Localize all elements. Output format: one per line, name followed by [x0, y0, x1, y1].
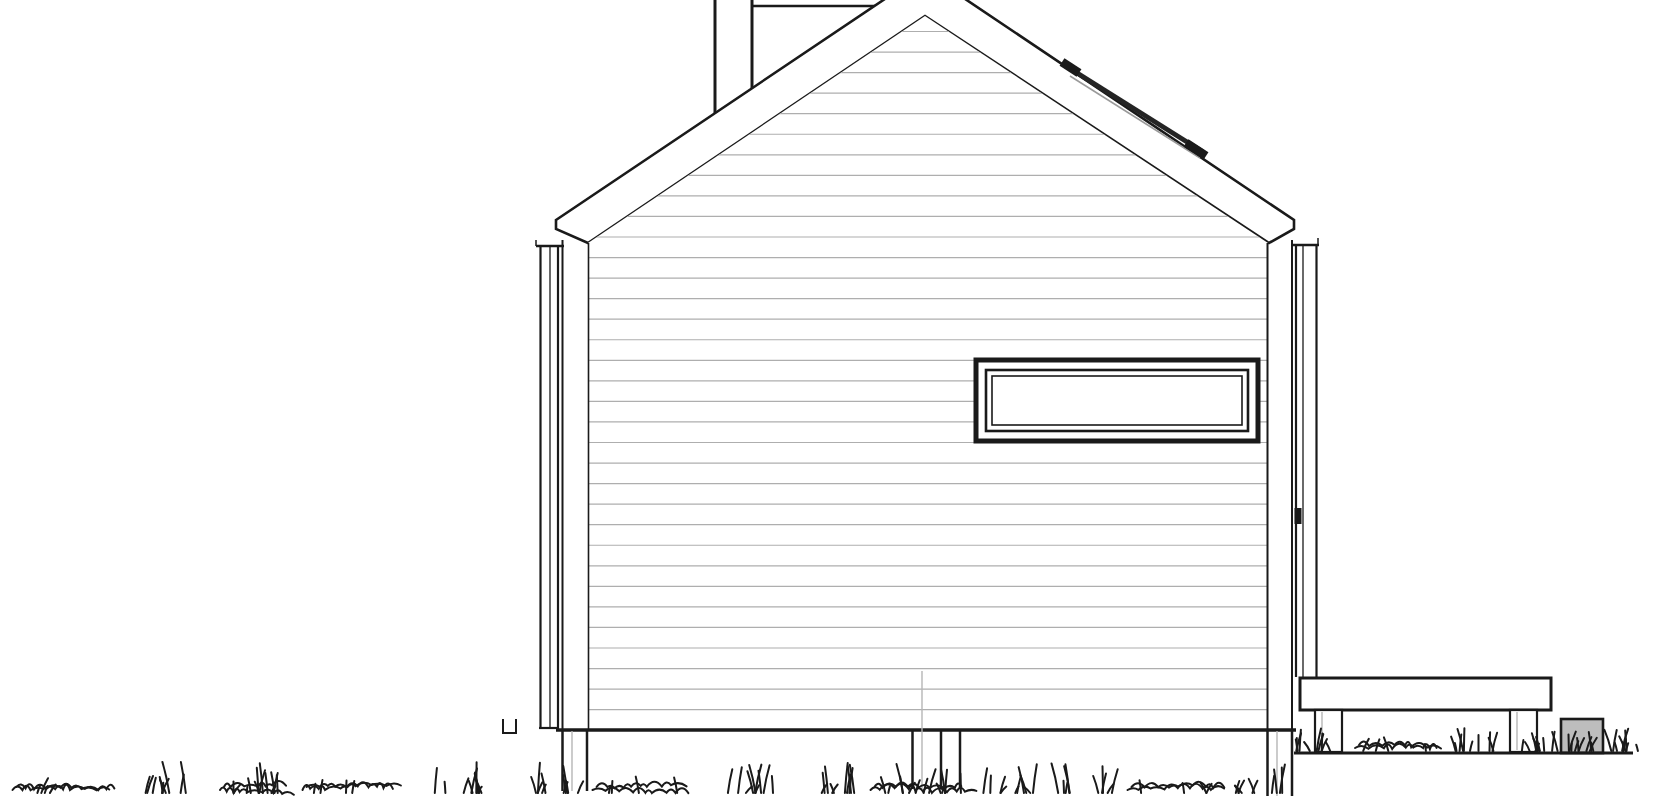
grass-blade: [1140, 780, 1142, 793]
grass-blade: [445, 782, 446, 793]
grass-tuft-cluster: [1451, 728, 1497, 751]
grass-scribble-cluster: [1355, 737, 1441, 751]
grass-blade: [746, 786, 752, 793]
grass-blade: [1017, 777, 1021, 793]
grass: [13, 728, 1638, 795]
grass-blade: [578, 781, 583, 793]
grass-blade: [1425, 744, 1426, 751]
grass-tuft-cluster: [220, 763, 294, 795]
drawing-canvas: [0, 0, 1670, 800]
grass-scribble-cluster: [593, 777, 689, 794]
grass-blade: [728, 769, 732, 793]
grass-blade: [346, 781, 347, 793]
grass-blade: [612, 781, 613, 793]
grass-tuft-cluster: [146, 762, 186, 793]
grass-blade: [764, 765, 770, 793]
grass-blade: [1604, 730, 1611, 751]
grass-blade: [636, 777, 639, 793]
grass-blade: [990, 776, 991, 794]
grass-blade: [1112, 769, 1118, 793]
grass-blade: [983, 768, 987, 793]
grass-blade: [1183, 783, 1185, 793]
grass-scribble-cluster: [303, 780, 401, 793]
grass-blade: [960, 774, 961, 794]
grass-blade: [1464, 728, 1465, 751]
grass-blade: [1543, 738, 1544, 751]
grass-blade: [1470, 742, 1472, 752]
grass-blade: [738, 767, 742, 793]
window-glass: [992, 376, 1242, 425]
grass-blade: [464, 778, 469, 793]
grass-blade: [435, 768, 437, 793]
grass-blade: [314, 784, 316, 793]
grass-tuft-cluster: [531, 763, 583, 793]
grass-tuft-cluster: [983, 764, 1036, 793]
deck-slab: [1300, 678, 1551, 710]
grass-blade: [1064, 781, 1065, 793]
grass-blade: [825, 767, 828, 793]
grass-blade: [1066, 783, 1068, 793]
grass-blade: [1322, 733, 1323, 751]
grass-blade: [888, 786, 890, 793]
grass-blade: [37, 786, 40, 794]
grass-blade: [1052, 763, 1059, 793]
grass-tuft-cluster: [1052, 763, 1118, 793]
grass-blade: [531, 777, 536, 793]
grass-tuft-cluster: [822, 763, 855, 793]
grass-blade: [1636, 745, 1638, 751]
grass-blade: [1490, 732, 1491, 751]
grass-blade: [772, 776, 773, 793]
grass-blade: [897, 764, 904, 793]
grass-blade: [153, 778, 156, 793]
grass-scribble-cluster: [13, 778, 115, 793]
elevation-drawing: [0, 0, 1670, 800]
grass-scribble: [593, 787, 689, 793]
grass-blade: [1272, 776, 1274, 793]
grass-blade: [1033, 764, 1037, 793]
right-downspout-bracket: [1295, 508, 1302, 524]
grass-blade: [1625, 731, 1626, 751]
grass-blade: [247, 787, 248, 793]
grass-blade: [1093, 776, 1098, 793]
stone-block: [1561, 719, 1603, 753]
grass-tuft-cluster: [728, 765, 773, 793]
grass-blade: [1304, 742, 1310, 751]
grass-blade: [609, 786, 611, 793]
grass-tuft-cluster: [1604, 729, 1638, 751]
grass-tuft-cluster: [435, 762, 482, 793]
small-ground-bracket: [503, 719, 516, 733]
grass-scribble-cluster: [1128, 780, 1225, 793]
grass-blade: [321, 780, 323, 793]
